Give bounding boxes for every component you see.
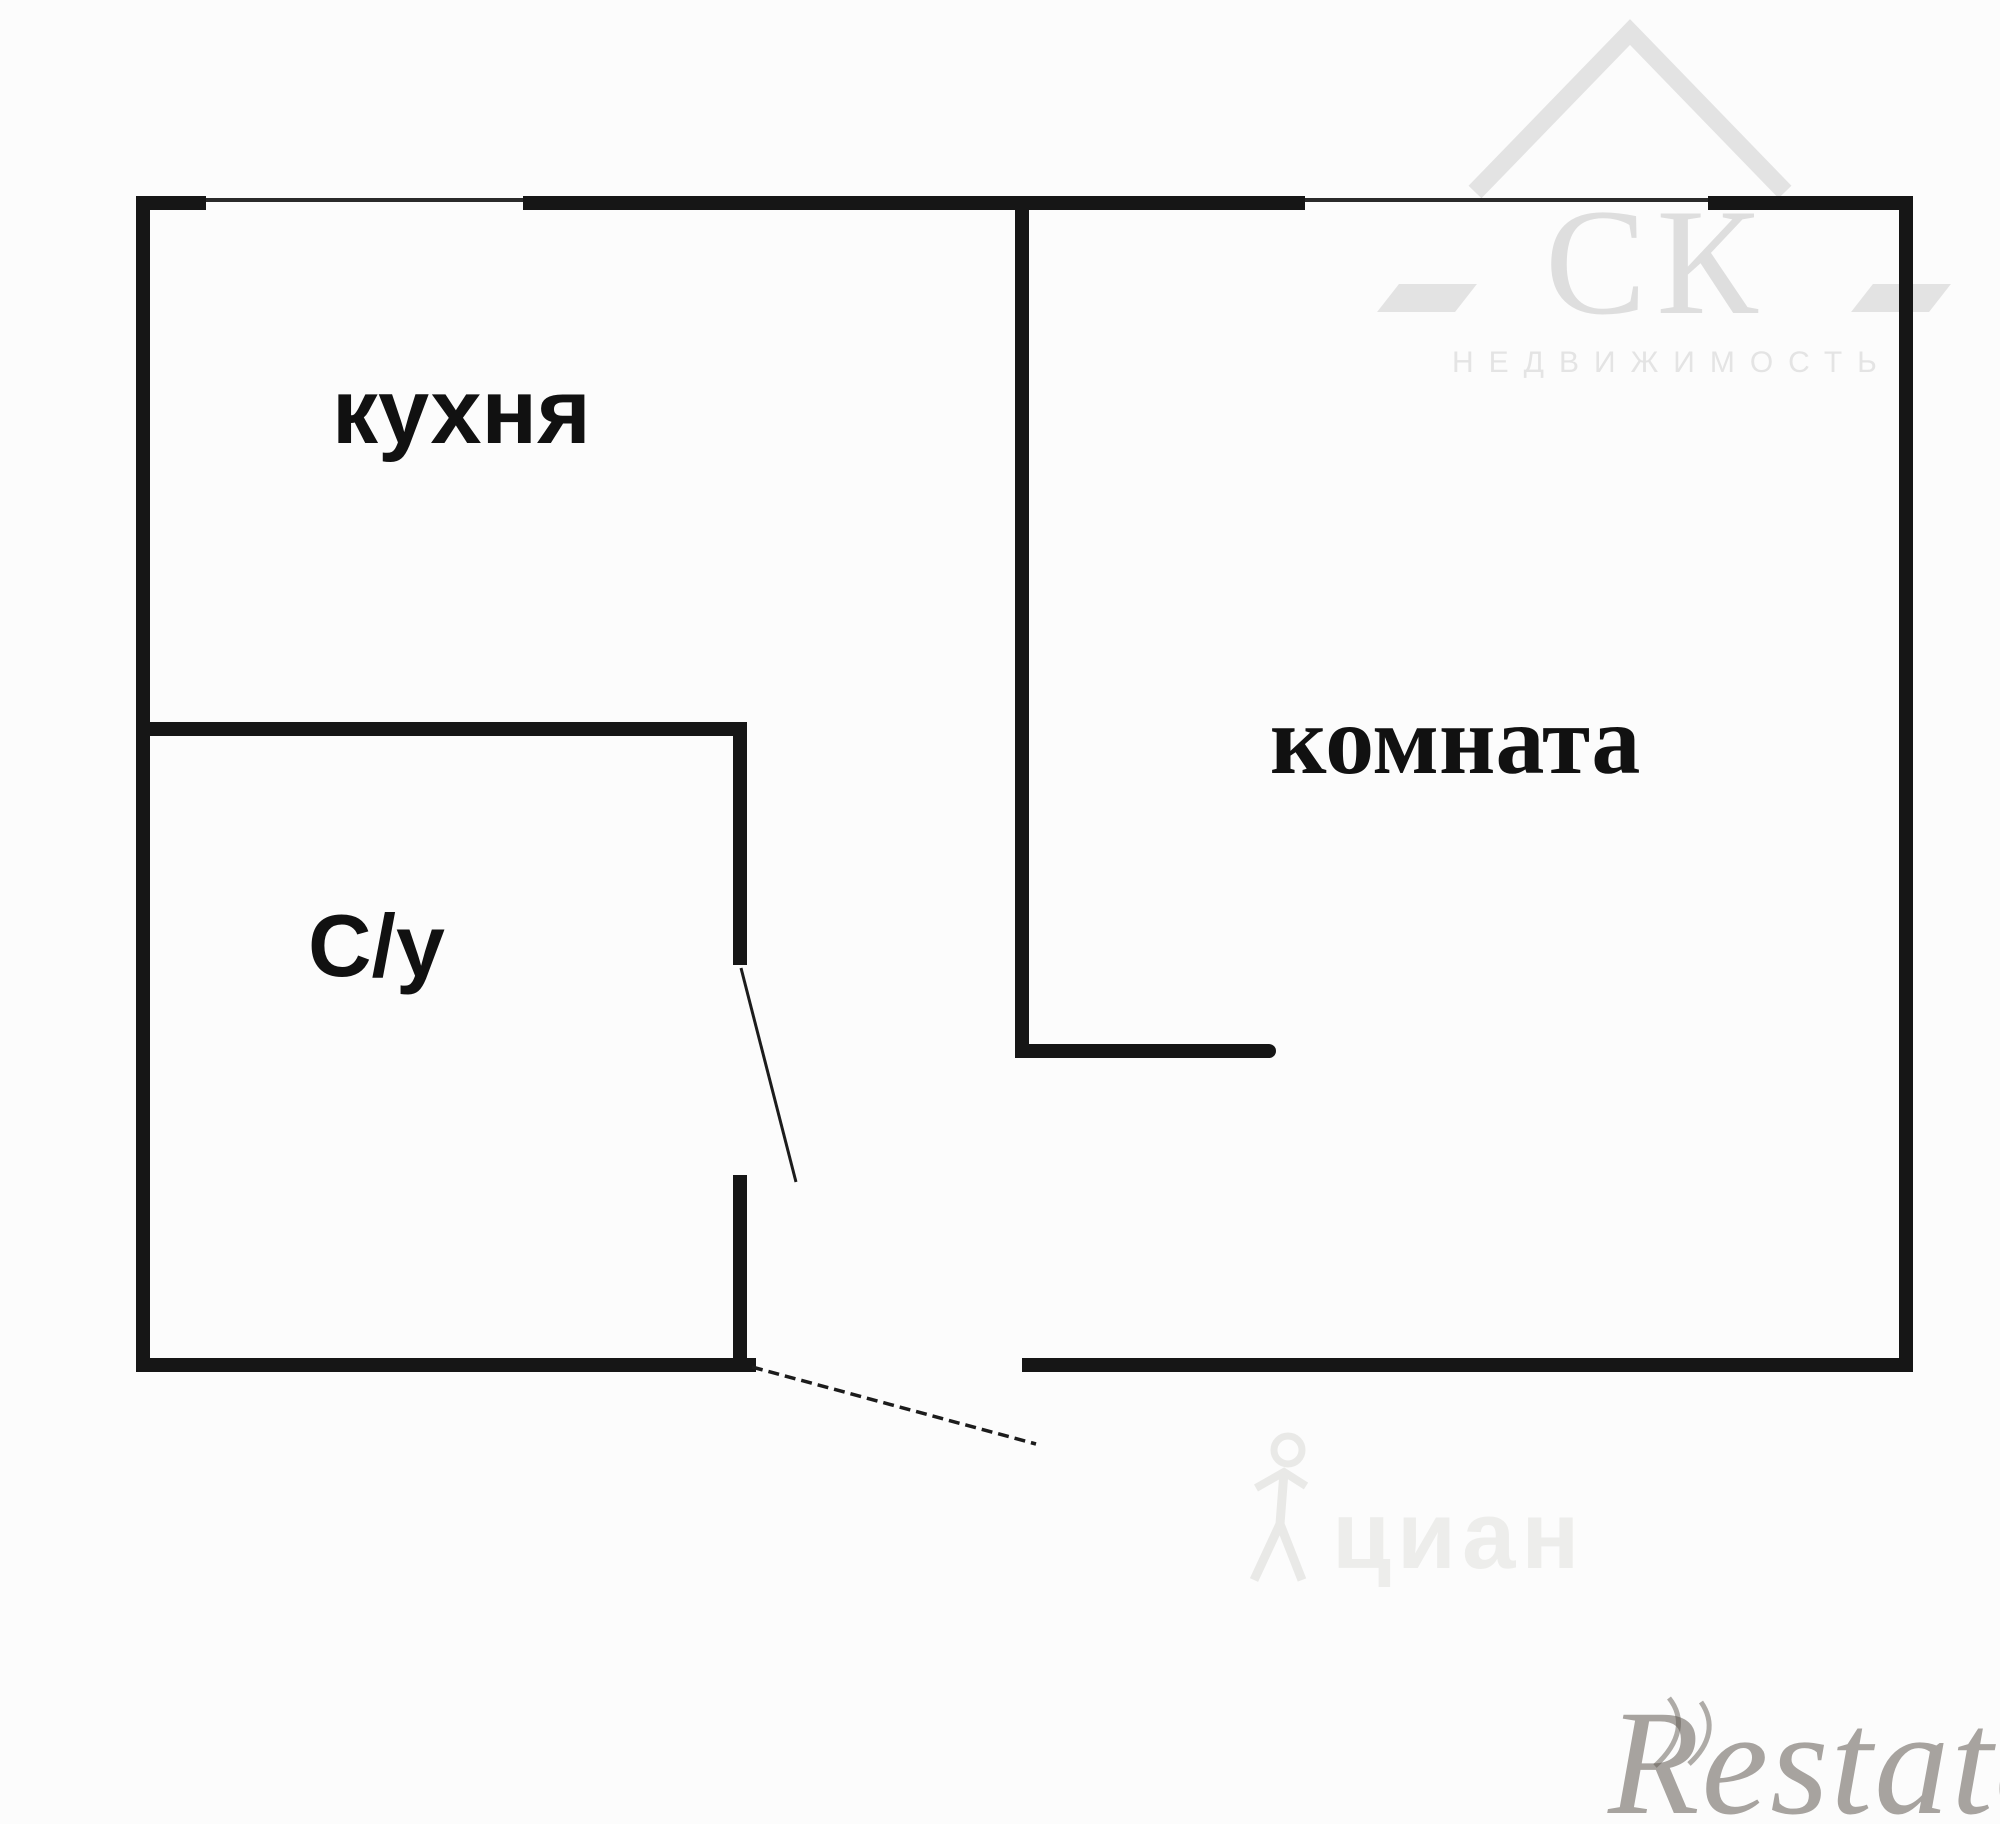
room-label: комната xyxy=(1270,692,1640,790)
kitchen-label: кухня xyxy=(332,366,591,458)
bathroom-label: С/у xyxy=(308,902,445,990)
floorplan: СК НЕДВИЖИМОСТЬ циан xyxy=(0,0,2000,1824)
labels-layer: кухня комната С/у xyxy=(0,0,2000,1824)
